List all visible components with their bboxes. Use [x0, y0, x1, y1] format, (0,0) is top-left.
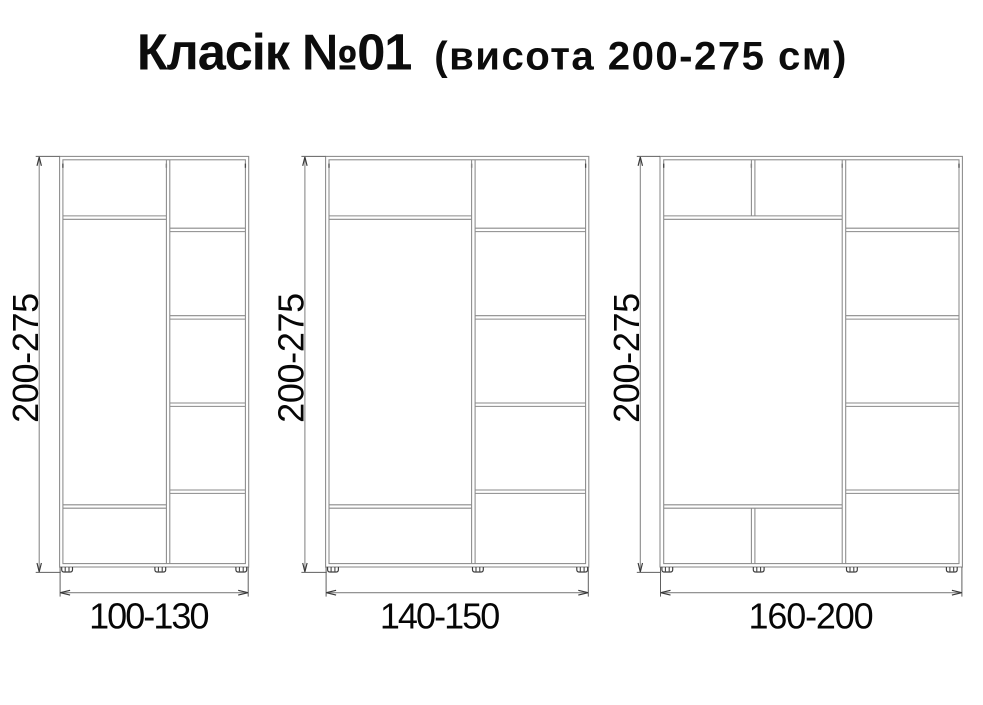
- svg-text:(висота 200-275 см): (висота 200-275 см): [434, 33, 848, 78]
- svg-text:200-275: 200-275: [5, 293, 46, 423]
- svg-text:200-275: 200-275: [271, 293, 312, 423]
- svg-text:160-200: 160-200: [748, 596, 872, 637]
- svg-text:200-275: 200-275: [606, 293, 647, 423]
- svg-text:140-150: 140-150: [380, 596, 499, 637]
- svg-text:100-130: 100-130: [89, 596, 208, 637]
- svg-text:Класік №01: Класік №01: [137, 23, 411, 80]
